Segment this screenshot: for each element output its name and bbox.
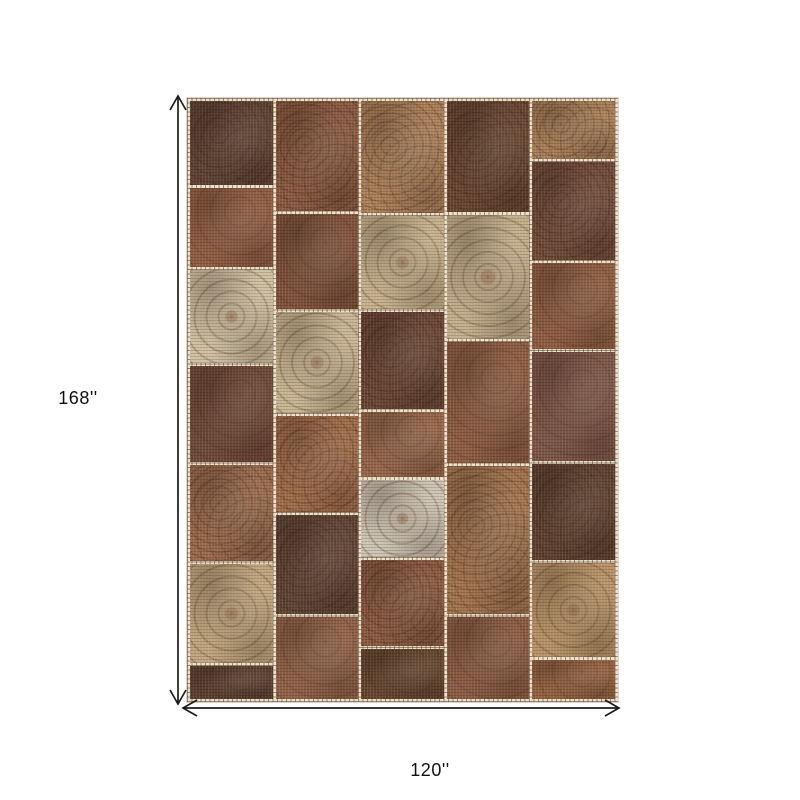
width-dimension-label: 120'' — [395, 760, 465, 781]
rug-patch — [447, 101, 530, 212]
rug-patch — [276, 312, 359, 413]
rug-patch — [447, 215, 530, 339]
rug-patch — [361, 412, 444, 477]
rug-patch — [361, 101, 444, 213]
rug-image — [187, 98, 618, 702]
rug-column — [276, 101, 359, 699]
rug-column — [447, 101, 530, 699]
rug-patch — [361, 560, 444, 646]
rug-patch — [190, 188, 273, 268]
rug-patch — [447, 617, 530, 699]
rug-patch — [447, 342, 530, 463]
dimension-diagram: 168'' 120'' — [0, 0, 800, 800]
width-arrow — [183, 700, 619, 716]
rug-patch — [532, 263, 615, 349]
rug-column — [532, 101, 615, 699]
rug-patch — [190, 465, 273, 561]
rug-patch — [532, 101, 615, 159]
rug-patch — [276, 101, 359, 211]
rug-patch — [276, 416, 359, 513]
rug-column — [190, 101, 273, 699]
rug-patch — [361, 649, 444, 699]
rug-patch — [361, 216, 444, 309]
rug-patch — [532, 352, 615, 461]
height-arrow — [170, 96, 186, 704]
rug-patch — [361, 312, 444, 408]
rug-patch — [361, 480, 444, 557]
rug-patch — [190, 366, 273, 462]
rug-patch — [447, 466, 530, 613]
rug-patch — [190, 270, 273, 363]
rug-patch — [532, 464, 615, 560]
rug-patch — [190, 666, 273, 699]
rug-patch — [276, 515, 359, 613]
rug-patch — [276, 617, 359, 699]
rug-patch — [532, 162, 615, 260]
rug-patch — [276, 214, 359, 309]
rug-column — [361, 101, 444, 699]
rug-patch — [532, 660, 615, 699]
rug-patch — [190, 564, 273, 663]
rug-patch — [532, 563, 615, 657]
height-dimension-label: 168'' — [43, 388, 113, 409]
rug-patch — [190, 101, 273, 185]
